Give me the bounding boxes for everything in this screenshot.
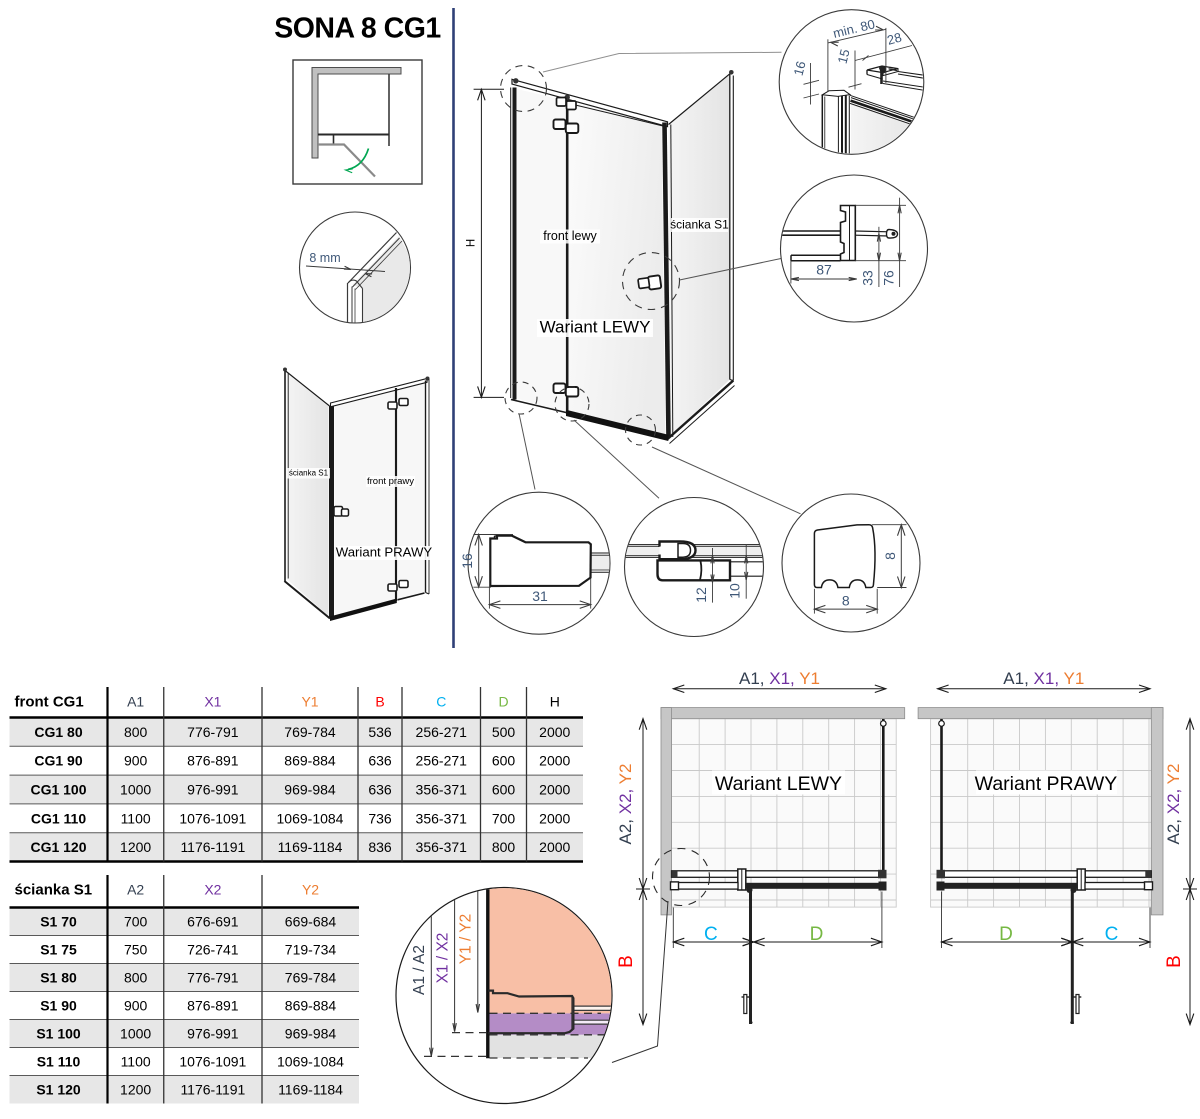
svg-text:256-271: 256-271 xyxy=(416,753,468,769)
svg-text:869-884: 869-884 xyxy=(284,753,336,769)
svg-text:1000: 1000 xyxy=(120,782,151,798)
svg-text:1169-1184: 1169-1184 xyxy=(278,839,343,855)
svg-text:800: 800 xyxy=(124,724,148,740)
svg-text:736: 736 xyxy=(368,810,392,826)
svg-text:976-991: 976-991 xyxy=(187,1026,239,1042)
svg-text:976-991: 976-991 xyxy=(187,782,239,798)
svg-text:636: 636 xyxy=(368,782,392,798)
svg-text:769-784: 769-784 xyxy=(284,724,336,740)
svg-text:A2, X2, Y2: A2, X2, Y2 xyxy=(1164,764,1183,845)
svg-text:CG1 120: CG1 120 xyxy=(30,839,86,855)
svg-text:A1 / A2: A1 / A2 xyxy=(411,945,428,995)
svg-text:836: 836 xyxy=(368,839,392,855)
svg-text:1000: 1000 xyxy=(120,1026,151,1042)
svg-text:676-691: 676-691 xyxy=(187,914,239,930)
svg-text:B: B xyxy=(375,694,384,710)
svg-text:969-984: 969-984 xyxy=(285,1026,337,1042)
svg-text:900: 900 xyxy=(124,753,148,769)
svg-text:256-271: 256-271 xyxy=(416,724,468,740)
svg-text:2000: 2000 xyxy=(539,810,570,826)
svg-text:S1 70: S1 70 xyxy=(40,914,77,930)
svg-text:front prawy: front prawy xyxy=(367,476,414,487)
svg-text:Wariant PRAWY: Wariant PRAWY xyxy=(975,773,1118,795)
svg-text:S1 110: S1 110 xyxy=(37,1054,81,1070)
svg-text:8 mm: 8 mm xyxy=(309,251,340,265)
svg-text:719-734: 719-734 xyxy=(285,942,337,958)
svg-text:CG1 80: CG1 80 xyxy=(34,724,82,740)
svg-text:front lewy: front lewy xyxy=(543,229,597,243)
svg-text:SONA 8 CG1: SONA 8 CG1 xyxy=(274,13,441,45)
svg-text:600: 600 xyxy=(492,782,516,798)
svg-text:2000: 2000 xyxy=(539,839,570,855)
svg-text:12: 12 xyxy=(693,587,709,603)
svg-text:X1 / X2: X1 / X2 xyxy=(435,933,452,984)
svg-text:S1 100: S1 100 xyxy=(36,1026,81,1042)
svg-text:2000: 2000 xyxy=(539,724,570,740)
svg-text:536: 536 xyxy=(368,724,392,740)
svg-text:2000: 2000 xyxy=(539,782,570,798)
svg-text:CG1 110: CG1 110 xyxy=(31,810,86,826)
svg-text:X1: X1 xyxy=(204,694,221,710)
svg-text:CG1 100: CG1 100 xyxy=(30,782,86,798)
svg-text:969-984: 969-984 xyxy=(284,782,336,798)
svg-text:B: B xyxy=(1164,955,1185,968)
svg-text:776-791: 776-791 xyxy=(187,970,239,986)
svg-text:S1 90: S1 90 xyxy=(40,998,77,1014)
svg-text:Y1 / Y2: Y1 / Y2 xyxy=(458,914,475,965)
svg-text:A2: A2 xyxy=(127,882,144,898)
svg-text:ścianka S1: ścianka S1 xyxy=(15,882,93,899)
svg-text:750: 750 xyxy=(124,942,148,958)
svg-text:1200: 1200 xyxy=(120,839,151,855)
svg-text:A1, X1, Y1: A1, X1, Y1 xyxy=(1003,669,1084,688)
svg-text:C: C xyxy=(704,924,718,945)
svg-text:800: 800 xyxy=(124,970,148,986)
svg-text:356-371: 356-371 xyxy=(416,810,468,826)
svg-text:500: 500 xyxy=(492,724,516,740)
svg-text:D: D xyxy=(810,924,824,945)
svg-text:A2, X2, Y2: A2, X2, Y2 xyxy=(616,764,635,845)
svg-text:800: 800 xyxy=(492,839,516,855)
svg-text:S1 75: S1 75 xyxy=(40,942,77,958)
svg-text:33: 33 xyxy=(860,270,876,286)
svg-text:1076-1091: 1076-1091 xyxy=(179,1054,246,1070)
svg-text:669-684: 669-684 xyxy=(285,914,337,930)
svg-text:10: 10 xyxy=(727,583,743,599)
svg-text:front CG1: front CG1 xyxy=(15,694,84,711)
svg-text:X2: X2 xyxy=(204,882,221,898)
svg-text:1176-1191: 1176-1191 xyxy=(180,1082,245,1098)
svg-text:C: C xyxy=(436,694,446,710)
svg-text:H: H xyxy=(550,694,560,710)
svg-text:A1, X1, Y1: A1, X1, Y1 xyxy=(739,669,820,688)
svg-text:1200: 1200 xyxy=(120,1082,151,1098)
svg-text:8: 8 xyxy=(842,593,850,609)
svg-text:600: 600 xyxy=(492,753,516,769)
svg-text:Wariant LEWY: Wariant LEWY xyxy=(540,318,651,337)
svg-text:636: 636 xyxy=(368,753,392,769)
svg-text:S1 80: S1 80 xyxy=(40,970,77,986)
svg-text:1076-1091: 1076-1091 xyxy=(179,810,246,826)
svg-text:S1 120: S1 120 xyxy=(36,1082,81,1098)
svg-text:1176-1191: 1176-1191 xyxy=(180,839,245,855)
svg-text:700: 700 xyxy=(124,914,148,930)
svg-text:1069-1084: 1069-1084 xyxy=(277,810,344,826)
svg-text:87: 87 xyxy=(816,262,832,278)
svg-text:16: 16 xyxy=(459,553,475,569)
svg-text:8: 8 xyxy=(882,552,898,560)
svg-text:Y1: Y1 xyxy=(301,694,318,710)
svg-text:Wariant LEWY: Wariant LEWY xyxy=(715,773,842,795)
svg-text:869-884: 869-884 xyxy=(285,998,337,1014)
svg-text:B: B xyxy=(616,955,637,968)
svg-text:726-741: 726-741 xyxy=(187,942,239,958)
svg-text:1100: 1100 xyxy=(121,1054,151,1070)
svg-text:H: H xyxy=(466,239,478,247)
svg-text:700: 700 xyxy=(492,810,516,826)
svg-text:Wariant PRAWY: Wariant PRAWY xyxy=(336,545,433,560)
svg-text:2000: 2000 xyxy=(539,753,570,769)
svg-text:D: D xyxy=(498,694,508,710)
svg-text:ścianka S1: ścianka S1 xyxy=(289,469,329,478)
svg-text:876-891: 876-891 xyxy=(187,753,239,769)
svg-text:1169-1184: 1169-1184 xyxy=(278,1082,343,1098)
svg-text:Y2: Y2 xyxy=(302,882,319,898)
svg-text:900: 900 xyxy=(124,998,148,1014)
svg-text:769-784: 769-784 xyxy=(285,970,337,986)
svg-text:1100: 1100 xyxy=(121,810,151,826)
svg-text:1069-1084: 1069-1084 xyxy=(277,1054,344,1070)
svg-text:356-371: 356-371 xyxy=(416,782,468,798)
svg-text:C: C xyxy=(1105,924,1119,945)
svg-text:A1: A1 xyxy=(127,694,144,710)
svg-text:ścianka S1: ścianka S1 xyxy=(670,218,729,232)
svg-text:876-891: 876-891 xyxy=(187,998,239,1014)
svg-text:356-371: 356-371 xyxy=(416,839,468,855)
svg-text:D: D xyxy=(999,924,1013,945)
svg-text:CG1 90: CG1 90 xyxy=(34,753,82,769)
svg-text:31: 31 xyxy=(532,588,548,604)
svg-text:776-791: 776-791 xyxy=(187,724,239,740)
svg-text:76: 76 xyxy=(881,270,897,286)
